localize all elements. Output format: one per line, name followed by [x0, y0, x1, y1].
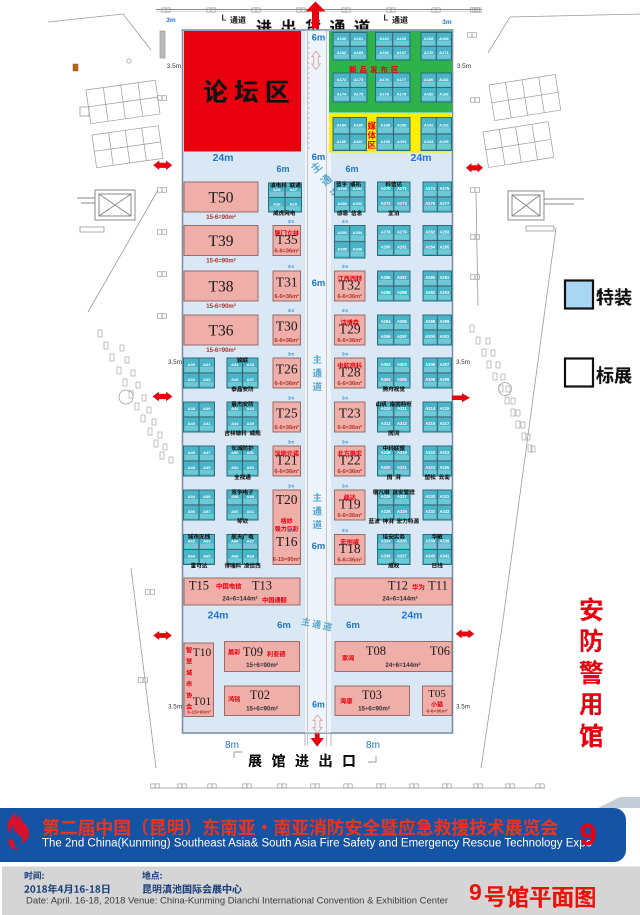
svg-text:A392: A392 — [353, 201, 363, 206]
svg-text:A55: A55 — [203, 494, 211, 499]
svg-text:A53: A53 — [247, 465, 255, 470]
svg-text:A395: A395 — [337, 246, 347, 251]
svg-text:T21: T21 — [276, 453, 298, 468]
svg-text:T22: T22 — [339, 453, 361, 468]
svg-text:A311: A311 — [397, 406, 407, 411]
svg-text:A327: A327 — [397, 494, 408, 499]
svg-text:T13: T13 — [252, 579, 272, 593]
svg-text:A285: A285 — [439, 245, 450, 250]
svg-text:T15: T15 — [189, 579, 209, 593]
svg-text:6-6=36m²: 6-6=36m² — [338, 468, 363, 475]
svg-text:A193: A193 — [439, 122, 449, 127]
svg-text:A396: A396 — [353, 246, 363, 251]
svg-text:T03: T03 — [362, 688, 382, 702]
svg-text:A41: A41 — [203, 421, 211, 426]
svg-text:A276: A276 — [425, 201, 436, 206]
svg-text:A301: A301 — [439, 334, 450, 339]
svg-text:8m: 8m — [366, 740, 380, 751]
svg-text:T32: T32 — [339, 278, 361, 293]
svg-text:6-6=36m²: 6-6=36m² — [275, 468, 300, 475]
svg-text:A297: A297 — [397, 334, 408, 339]
svg-text:A313: A313 — [397, 421, 408, 426]
svg-text:A329: A329 — [397, 509, 408, 514]
svg-text:T39: T39 — [209, 233, 234, 250]
svg-text:3m: 3m — [342, 528, 349, 534]
svg-text:15÷6=90m²: 15÷6=90m² — [246, 706, 278, 713]
svg-text:A173: A173 — [354, 77, 364, 82]
svg-text:A291: A291 — [439, 275, 450, 280]
svg-text:A338: A338 — [425, 539, 436, 544]
svg-text:A295: A295 — [397, 319, 408, 324]
svg-text:6-6=36m²: 6-6=36m² — [338, 512, 363, 519]
svg-text:A39: A39 — [203, 406, 211, 411]
svg-text:A174: A174 — [337, 91, 347, 96]
svg-text:6-6=36m²: 6-6=36m² — [338, 337, 363, 344]
svg-text:6m: 6m — [276, 164, 289, 174]
svg-text:T19: T19 — [339, 497, 361, 512]
svg-text:A320: A320 — [381, 465, 392, 470]
svg-text:A322: A322 — [425, 450, 436, 455]
svg-text:A282: A282 — [425, 230, 436, 235]
svg-text:A336: A336 — [381, 554, 392, 559]
svg-text:T23: T23 — [339, 406, 361, 421]
svg-text:A306: A306 — [425, 362, 436, 367]
svg-text:6-6=36m²: 6-6=36m² — [275, 380, 300, 387]
svg-text:A169: A169 — [439, 36, 449, 41]
svg-text:A40: A40 — [188, 421, 196, 426]
svg-text:A48: A48 — [188, 465, 196, 470]
svg-text:A166: A166 — [379, 50, 389, 55]
svg-text:6m: 6m — [312, 33, 326, 44]
svg-text:A317: A317 — [439, 421, 450, 426]
svg-text:A62: A62 — [188, 539, 196, 544]
svg-text:A68: A68 — [231, 554, 239, 559]
svg-text:A29: A29 — [290, 201, 298, 206]
svg-text:L: L — [222, 14, 227, 23]
svg-text:A184: A184 — [337, 122, 347, 127]
svg-text:A179: A179 — [397, 91, 407, 96]
svg-text:A180: A180 — [424, 77, 434, 82]
svg-text:A302: A302 — [381, 362, 392, 367]
svg-text:24m: 24m — [207, 610, 228, 622]
svg-text:A182: A182 — [424, 91, 434, 96]
svg-text:A45: A45 — [247, 421, 255, 426]
svg-text:A303: A303 — [397, 362, 408, 367]
svg-text:T12: T12 — [388, 579, 408, 593]
svg-text:A60: A60 — [231, 509, 239, 514]
svg-text:6m: 6m — [346, 620, 360, 631]
svg-text:A278: A278 — [381, 230, 392, 235]
svg-text:A165: A165 — [397, 36, 407, 41]
svg-text:3m: 3m — [342, 219, 349, 225]
svg-text:T28: T28 — [339, 365, 361, 380]
svg-text:6-6=36m²: 6-6=36m² — [338, 380, 363, 387]
svg-text:A274: A274 — [425, 186, 436, 191]
svg-text:24÷6=144m²: 24÷6=144m² — [382, 596, 417, 603]
svg-text:A290: A290 — [425, 275, 436, 280]
svg-text:A56: A56 — [188, 509, 196, 514]
svg-text:A164: A164 — [379, 36, 389, 41]
svg-text:A170: A170 — [424, 50, 434, 55]
svg-text:A192: A192 — [424, 122, 434, 127]
svg-text:3m: 3m — [166, 17, 176, 24]
svg-text:The 2nd China(Kunming) Southea: The 2nd China(Kunming) Southeast Asia& S… — [42, 838, 592, 850]
svg-text:24÷6=144m²: 24÷6=144m² — [222, 596, 257, 603]
svg-text:A37: A37 — [247, 377, 255, 382]
svg-text:A334: A334 — [381, 539, 392, 544]
svg-text:A394: A394 — [353, 230, 363, 235]
svg-text:T25: T25 — [276, 406, 298, 421]
svg-text:A296: A296 — [381, 334, 392, 339]
svg-text:3m: 3m — [442, 19, 452, 26]
svg-text:A304: A304 — [381, 377, 392, 382]
svg-text:6-6=36m²: 6-6=36m² — [338, 293, 363, 300]
svg-text:A63: A63 — [203, 539, 211, 544]
svg-text:A28: A28 — [273, 201, 281, 206]
svg-text:15-6=90m²: 15-6=90m² — [206, 303, 236, 310]
svg-text:A310: A310 — [381, 406, 392, 411]
svg-text:6m: 6m — [312, 152, 326, 163]
svg-text:A299: A299 — [439, 319, 450, 324]
svg-text:A308: A308 — [425, 377, 436, 382]
svg-text:A160: A160 — [337, 36, 347, 41]
svg-text:A281: A281 — [397, 245, 408, 250]
svg-text:A189: A189 — [397, 122, 407, 127]
svg-text:A333: A333 — [439, 509, 450, 514]
svg-text:A324: A324 — [425, 465, 436, 470]
svg-text:A54: A54 — [188, 494, 196, 499]
svg-text:A47: A47 — [203, 450, 211, 455]
svg-text:A305: A305 — [397, 377, 408, 382]
svg-text:T36: T36 — [209, 323, 234, 340]
svg-text:A270: A270 — [381, 186, 392, 191]
svg-text:6-6=36m²: 6-6=36m² — [275, 337, 300, 344]
svg-text:A36: A36 — [231, 377, 239, 382]
svg-text:A31: A31 — [203, 362, 211, 367]
svg-text:A319: A319 — [397, 450, 408, 455]
svg-text:A298: A298 — [425, 319, 436, 324]
svg-text:A283: A283 — [439, 230, 450, 235]
svg-text:3m: 3m — [342, 264, 349, 270]
svg-text:A167: A167 — [397, 50, 407, 55]
svg-text:A280: A280 — [381, 245, 392, 250]
svg-text:A323: A323 — [439, 450, 450, 455]
svg-text:T26: T26 — [276, 362, 298, 377]
svg-text:A30: A30 — [188, 362, 196, 367]
svg-text:A328: A328 — [381, 509, 392, 514]
svg-text:A66: A66 — [231, 539, 239, 544]
svg-text:T31: T31 — [276, 275, 298, 290]
svg-text:3m: 3m — [288, 352, 295, 358]
svg-text:3m: 3m — [342, 352, 349, 358]
svg-text:Date: April. 16-18, 2018 Venu: Date: April. 16-18, 2018 Venue: China-Ku… — [26, 896, 448, 906]
svg-text:3m: 3m — [288, 440, 295, 446]
svg-text:A326: A326 — [381, 494, 392, 499]
svg-text:A289: A289 — [397, 290, 408, 295]
svg-text:T38: T38 — [209, 279, 234, 296]
svg-text:24m: 24m — [212, 152, 233, 164]
svg-text:T30: T30 — [276, 319, 298, 334]
svg-text:A185: A185 — [353, 122, 363, 127]
svg-text:9: 9 — [579, 817, 596, 852]
svg-text:6-15=90m²: 6-15=90m² — [187, 710, 211, 716]
svg-text:T11: T11 — [428, 579, 448, 593]
svg-text:A272: A272 — [381, 201, 392, 206]
svg-text:T09: T09 — [243, 645, 263, 659]
svg-text:3.5m: 3.5m — [167, 63, 181, 70]
svg-text:A178: A178 — [379, 91, 389, 96]
svg-text:A27: A27 — [290, 187, 298, 192]
svg-text:A186: A186 — [337, 139, 347, 144]
svg-text:3.5m: 3.5m — [456, 704, 470, 711]
svg-text:A316: A316 — [425, 421, 436, 426]
svg-text:6m: 6m — [312, 700, 325, 710]
svg-text:A330: A330 — [425, 494, 436, 499]
svg-text:A314: A314 — [425, 406, 436, 411]
svg-text:A288: A288 — [381, 290, 392, 295]
svg-text:3m: 3m — [342, 308, 349, 314]
svg-text:A389: A389 — [337, 201, 347, 206]
svg-text:A300: A300 — [425, 334, 436, 339]
svg-text:A194: A194 — [424, 139, 434, 144]
svg-text:A332: A332 — [425, 509, 436, 514]
svg-text:A393: A393 — [337, 230, 347, 235]
svg-text:A287: A287 — [397, 275, 408, 280]
svg-text:3m: 3m — [288, 264, 295, 270]
svg-text:T05: T05 — [428, 688, 446, 700]
svg-text:A286: A286 — [381, 275, 392, 280]
svg-text:3m: 3m — [288, 308, 295, 314]
svg-text:A315: A315 — [439, 406, 450, 411]
svg-text:A57: A57 — [203, 509, 211, 514]
svg-text:T35: T35 — [276, 232, 298, 247]
svg-text:A46: A46 — [188, 450, 196, 455]
svg-text:A52: A52 — [231, 465, 239, 470]
svg-text:A325: A325 — [439, 465, 450, 470]
svg-text:15÷6=90m²: 15÷6=90m² — [246, 662, 278, 669]
svg-text:15÷6=90m²: 15÷6=90m² — [358, 706, 390, 713]
svg-text:3m: 3m — [342, 484, 349, 490]
svg-text:A33: A33 — [203, 377, 211, 382]
svg-text:A341: A341 — [439, 554, 450, 559]
svg-text:A321: A321 — [397, 465, 408, 470]
svg-text:A340: A340 — [425, 554, 436, 559]
svg-text:T02: T02 — [250, 688, 270, 702]
svg-text:A69: A69 — [247, 554, 255, 559]
svg-text:6-6=36m²: 6-6=36m² — [338, 424, 363, 431]
svg-text:6-15=90m²: 6-15=90m² — [273, 556, 301, 563]
svg-text:6m: 6m — [312, 278, 326, 289]
svg-text:A188: A188 — [380, 122, 390, 127]
svg-text:A335: A335 — [397, 539, 408, 544]
svg-text:A183: A183 — [439, 91, 449, 96]
svg-text:A390: A390 — [337, 186, 347, 191]
svg-text:A51: A51 — [247, 450, 255, 455]
svg-text:6-6=36m²: 6-6=36m² — [275, 293, 300, 300]
svg-text:A190: A190 — [380, 139, 390, 144]
svg-text:9: 9 — [469, 879, 482, 905]
svg-text:15-6=90m²: 15-6=90m² — [206, 258, 236, 265]
svg-text:A163: A163 — [354, 50, 364, 55]
svg-text:T06: T06 — [430, 644, 450, 658]
svg-text:3.5m: 3.5m — [168, 704, 182, 711]
svg-text:6m: 6m — [345, 164, 358, 174]
svg-text:24m: 24m — [410, 152, 431, 164]
svg-text:6-6=36m²: 6-6=36m² — [275, 424, 300, 431]
svg-text:A50: A50 — [231, 450, 239, 455]
svg-text:A171: A171 — [439, 50, 449, 55]
svg-text:24m: 24m — [401, 610, 422, 622]
svg-text:A49: A49 — [203, 465, 211, 470]
svg-text:A177: A177 — [397, 77, 407, 82]
svg-text:A67: A67 — [247, 539, 255, 544]
svg-text:A34: A34 — [231, 362, 239, 367]
svg-text:3m: 3m — [342, 396, 349, 402]
svg-text:6-6=36m²: 6-6=36m² — [338, 557, 363, 564]
svg-text:A181: A181 — [439, 77, 449, 82]
svg-text:24÷6=144m²: 24÷6=144m² — [385, 662, 420, 669]
svg-text:A61: A61 — [247, 509, 255, 514]
svg-text:6m: 6m — [312, 541, 326, 552]
svg-text:A161: A161 — [354, 36, 364, 41]
svg-text:A279: A279 — [397, 230, 408, 235]
svg-text:A32: A32 — [188, 377, 196, 382]
svg-text:6-6=36m²: 6-6=36m² — [427, 709, 448, 715]
svg-text:T18: T18 — [339, 541, 361, 556]
svg-text:A391: A391 — [353, 186, 363, 191]
svg-text:3.5m: 3.5m — [457, 63, 471, 70]
svg-text:15-6=90m²: 15-6=90m² — [206, 347, 236, 354]
svg-text:A42: A42 — [231, 406, 239, 411]
svg-text:A175: A175 — [354, 91, 364, 96]
svg-text:3m: 3m — [288, 528, 295, 534]
svg-text:3m: 3m — [288, 484, 295, 490]
svg-text:3m: 3m — [342, 440, 349, 446]
svg-text:15-6=90m²: 15-6=90m² — [206, 214, 236, 221]
svg-text:T29: T29 — [339, 322, 361, 337]
svg-text:A292: A292 — [425, 290, 436, 295]
svg-text:6-6=36m²: 6-6=36m² — [275, 248, 300, 255]
svg-text:L: L — [384, 14, 389, 23]
svg-text:A277: A277 — [439, 201, 450, 206]
svg-text:A271: A271 — [397, 186, 408, 191]
svg-text:A65: A65 — [203, 554, 211, 559]
svg-text:A312: A312 — [381, 421, 392, 426]
svg-text:T20: T20 — [276, 492, 298, 507]
svg-text:A273: A273 — [397, 201, 408, 206]
svg-text:A172: A172 — [337, 77, 347, 82]
svg-text:3m: 3m — [288, 219, 295, 225]
svg-text:A191: A191 — [397, 139, 407, 144]
svg-text:A43: A43 — [247, 406, 255, 411]
svg-text:8m: 8m — [225, 740, 239, 751]
svg-text:A337: A337 — [397, 554, 408, 559]
svg-text:A59: A59 — [247, 494, 255, 499]
svg-text:A275: A275 — [439, 186, 450, 191]
svg-text:T16: T16 — [276, 534, 298, 549]
svg-text:A331: A331 — [439, 494, 450, 499]
svg-text:A38: A38 — [188, 406, 196, 411]
svg-text:A44: A44 — [231, 421, 239, 426]
svg-text:A339: A339 — [439, 539, 450, 544]
svg-text:T08: T08 — [366, 644, 386, 658]
svg-text:T01: T01 — [193, 696, 212, 708]
svg-text:A318: A318 — [381, 450, 392, 455]
svg-text:6m: 6m — [277, 620, 291, 631]
svg-text:A168: A168 — [424, 36, 434, 41]
svg-text:A307: A307 — [439, 362, 450, 367]
svg-text:3.5m: 3.5m — [168, 359, 182, 366]
svg-text:A187: A187 — [353, 139, 363, 144]
svg-text:A176: A176 — [379, 77, 389, 82]
svg-text:T10: T10 — [193, 647, 212, 659]
svg-text:A26: A26 — [273, 187, 281, 192]
svg-text:A294: A294 — [381, 319, 392, 324]
svg-text:T50: T50 — [209, 190, 234, 207]
svg-text:A284: A284 — [425, 245, 436, 250]
svg-text:3m: 3m — [288, 396, 295, 402]
svg-text:A162: A162 — [337, 50, 347, 55]
svg-text:A35: A35 — [247, 362, 255, 367]
svg-text:3.5m: 3.5m — [456, 359, 470, 366]
svg-text:A293: A293 — [439, 290, 450, 295]
svg-text:A309: A309 — [439, 377, 450, 382]
svg-text:A58: A58 — [231, 494, 239, 499]
svg-text:A64: A64 — [188, 554, 196, 559]
svg-text:A195: A195 — [439, 139, 449, 144]
